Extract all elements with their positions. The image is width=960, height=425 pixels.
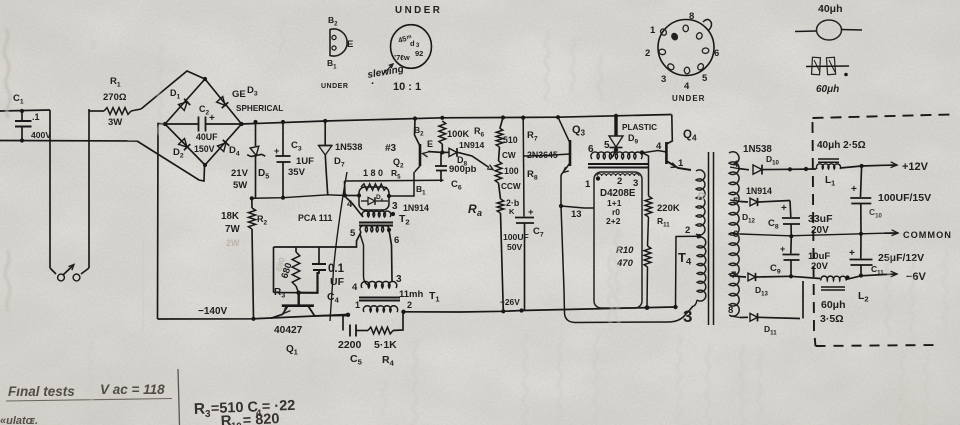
svg-text:5W: 5W bbox=[233, 180, 247, 191]
svg-text:40427: 40427 bbox=[274, 325, 303, 336]
svg-text:2+2: 2+2 bbox=[606, 216, 621, 226]
svg-text:6: 6 bbox=[588, 144, 594, 155]
svg-text:100: 100 bbox=[504, 166, 519, 176]
svg-text:UNDER: UNDER bbox=[395, 5, 442, 16]
svg-text:K: K bbox=[509, 207, 515, 216]
svg-text:1N538: 1N538 bbox=[335, 142, 362, 152]
svg-text:+: + bbox=[781, 203, 787, 214]
svg-text:5·1K: 5·1K bbox=[374, 339, 397, 351]
svg-text:510: 510 bbox=[503, 135, 518, 145]
svg-text:R: R bbox=[468, 202, 477, 216]
svg-text:PCA 111: PCA 111 bbox=[298, 213, 333, 223]
svg-text:−26V: −26V bbox=[500, 297, 520, 307]
svg-text:900pb: 900pb bbox=[449, 164, 477, 175]
svg-text:1: 1 bbox=[585, 179, 591, 190]
svg-text:40UF: 40UF bbox=[196, 132, 218, 142]
svg-text:+: + bbox=[849, 248, 855, 259]
svg-text:10: 10 bbox=[231, 421, 242, 425]
svg-text:UNDER: UNDER bbox=[321, 83, 348, 90]
svg-text:#3: #3 bbox=[385, 143, 397, 154]
svg-text:35V: 35V bbox=[288, 167, 306, 178]
svg-text:UNDER: UNDER bbox=[672, 94, 705, 103]
svg-text:3W: 3W bbox=[108, 117, 122, 128]
svg-text:·: · bbox=[371, 78, 375, 90]
svg-text:CW: CW bbox=[502, 151, 516, 160]
svg-text:1N914: 1N914 bbox=[459, 140, 485, 150]
svg-text:5: 5 bbox=[604, 140, 610, 151]
svg-text:4s: 4s bbox=[88, 39, 100, 51]
svg-text:+: + bbox=[528, 207, 534, 218]
svg-text:+: + bbox=[274, 146, 279, 156]
svg-text:92: 92 bbox=[415, 49, 423, 58]
svg-text:R: R bbox=[697, 191, 705, 203]
svg-text:270Ω: 270Ω bbox=[103, 92, 127, 103]
svg-text:33uF: 33uF bbox=[808, 213, 833, 225]
svg-text:4: 4 bbox=[352, 282, 358, 293]
svg-text:60μh: 60μh bbox=[821, 299, 846, 311]
svg-text:−140V: −140V bbox=[198, 306, 228, 317]
svg-text:GE: GE bbox=[232, 89, 246, 100]
svg-text:150V: 150V bbox=[194, 144, 215, 154]
svg-text:6: 6 bbox=[733, 229, 738, 240]
svg-text:3: 3 bbox=[392, 201, 398, 212]
svg-text:CCW: CCW bbox=[501, 182, 521, 191]
svg-text:100UF/15V: 100UF/15V bbox=[878, 192, 931, 204]
svg-text:3·5Ω: 3·5Ω bbox=[820, 313, 844, 325]
svg-text:5: 5 bbox=[733, 196, 739, 207]
svg-text:+12V: +12V bbox=[902, 161, 929, 173]
svg-text:+: + bbox=[780, 244, 785, 254]
svg-text:1: 1 bbox=[355, 300, 360, 310]
svg-text:PLASTIC: PLASTIC bbox=[622, 123, 657, 132]
svg-text:8: 8 bbox=[689, 11, 694, 22]
svg-text:13: 13 bbox=[571, 209, 582, 220]
svg-text:1: 1 bbox=[678, 158, 684, 169]
svg-text:60μh: 60μh bbox=[816, 84, 839, 95]
svg-text:.1: .1 bbox=[32, 112, 40, 122]
svg-text:4: 4 bbox=[656, 141, 662, 152]
svg-text:400V: 400V bbox=[31, 130, 51, 140]
svg-text:SPHERICAL: SPHERICAL bbox=[236, 104, 283, 113]
svg-text:40μh: 40μh bbox=[818, 3, 843, 15]
svg-text:E: E bbox=[347, 39, 353, 50]
svg-text:+: + bbox=[209, 113, 215, 124]
svg-text:V ac = 118: V ac = 118 bbox=[100, 382, 165, 397]
svg-text:1N914: 1N914 bbox=[403, 203, 429, 213]
svg-text:2: 2 bbox=[645, 48, 650, 59]
svg-text:1 8 0: 1 8 0 bbox=[363, 168, 383, 178]
svg-text:7W: 7W bbox=[225, 224, 240, 235]
svg-text:«ulatɶ.: «ulatɶ. bbox=[0, 415, 38, 425]
svg-text:2W: 2W bbox=[226, 238, 240, 248]
svg-text:2: 2 bbox=[407, 300, 412, 310]
svg-text:25μF/12V: 25μF/12V bbox=[878, 252, 924, 264]
svg-text:8: 8 bbox=[728, 305, 733, 316]
svg-text:3: 3 bbox=[396, 274, 402, 285]
svg-text:2: 2 bbox=[685, 225, 690, 236]
svg-text:5: 5 bbox=[350, 228, 356, 239]
svg-text:+: + bbox=[851, 184, 857, 195]
svg-text:COMMON: COMMON bbox=[903, 230, 952, 240]
svg-text:10 : 1: 10 : 1 bbox=[393, 81, 421, 93]
svg-text:1N914: 1N914 bbox=[746, 186, 772, 196]
svg-text:4: 4 bbox=[684, 81, 690, 92]
svg-text:220K: 220K bbox=[657, 203, 680, 214]
svg-text:7: 7 bbox=[731, 270, 736, 281]
svg-text:1UF: 1UF bbox=[296, 156, 314, 167]
svg-text:= 820: = 820 bbox=[242, 411, 279, 425]
svg-text:E: E bbox=[427, 139, 433, 149]
svg-text:6: 6 bbox=[394, 235, 399, 246]
svg-text:UF: UF bbox=[330, 276, 345, 288]
svg-text:Fınal tests: Fınal tests bbox=[8, 384, 75, 399]
svg-text:100K: 100K bbox=[447, 129, 470, 139]
svg-text:1: 1 bbox=[650, 25, 656, 36]
svg-text:3: 3 bbox=[683, 307, 692, 326]
svg-text:21V: 21V bbox=[231, 168, 249, 179]
svg-text:’7ℓw: ’7ℓw bbox=[394, 53, 410, 62]
svg-text:50V: 50V bbox=[507, 242, 523, 252]
svg-text:40μh 2·5Ω: 40μh 2·5Ω bbox=[817, 140, 866, 151]
svg-text:100UF: 100UF bbox=[503, 232, 529, 242]
svg-text:6: 6 bbox=[714, 48, 719, 59]
svg-text:d: d bbox=[410, 39, 415, 48]
svg-text:5: 5 bbox=[702, 73, 708, 84]
svg-text:2200: 2200 bbox=[338, 339, 362, 351]
svg-text:18K: 18K bbox=[221, 211, 239, 222]
svg-text:R: R bbox=[194, 401, 206, 418]
svg-text:2: 2 bbox=[617, 176, 622, 187]
svg-text:0.1: 0.1 bbox=[328, 263, 345, 275]
svg-text:3: 3 bbox=[661, 74, 666, 85]
svg-text:a: a bbox=[477, 208, 482, 218]
svg-text:11mh: 11mh bbox=[399, 289, 423, 300]
